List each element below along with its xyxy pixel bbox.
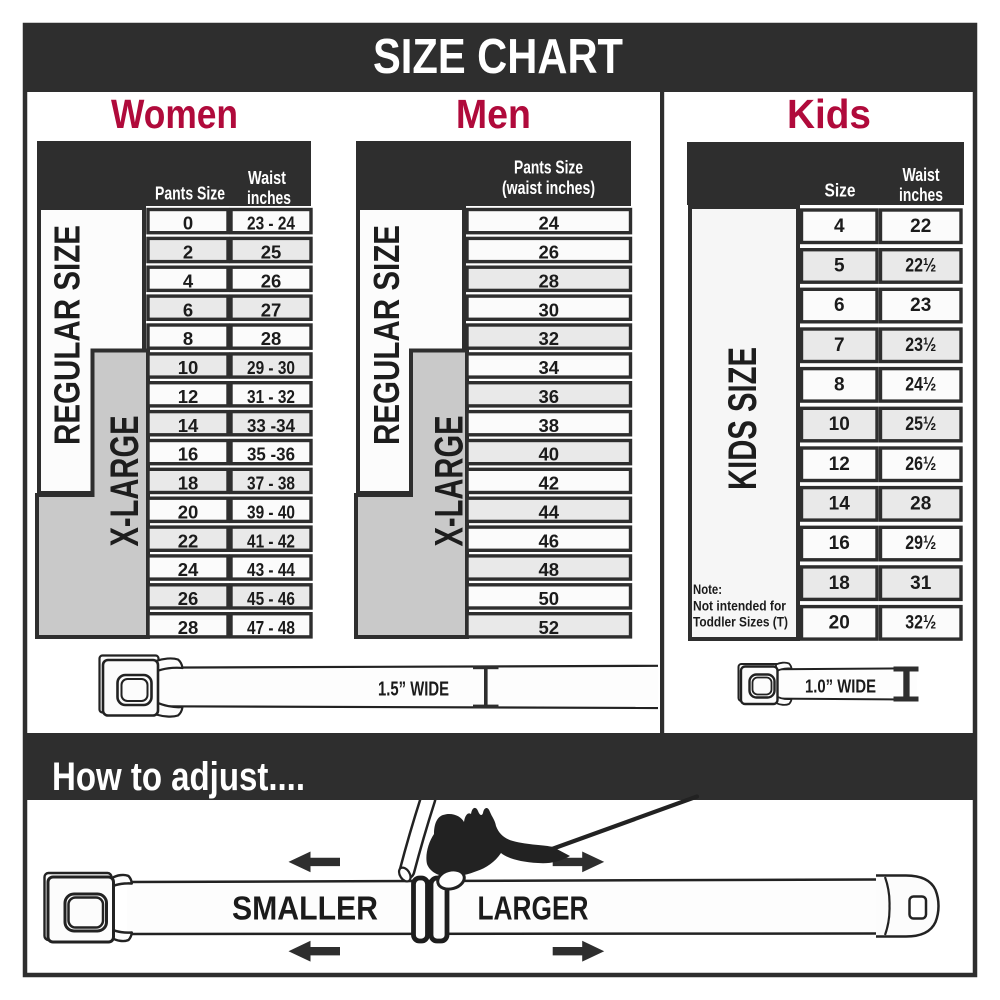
- svg-text:1.5” WIDE: 1.5” WIDE: [378, 679, 449, 701]
- svg-text:8: 8: [183, 328, 193, 349]
- svg-text:Toddler Sizes (T): Toddler Sizes (T): [693, 615, 788, 630]
- svg-text:40: 40: [538, 444, 559, 465]
- svg-text:48: 48: [538, 559, 559, 580]
- svg-text:X-LARGE: X-LARGE: [103, 416, 147, 547]
- svg-text:26½: 26½: [905, 454, 936, 475]
- svg-text:22: 22: [910, 216, 931, 237]
- svg-text:Waist: Waist: [248, 167, 286, 188]
- svg-text:28: 28: [910, 494, 931, 515]
- svg-text:Size: Size: [825, 180, 856, 201]
- svg-text:inches: inches: [899, 184, 943, 205]
- svg-text:38: 38: [538, 415, 559, 436]
- svg-text:24: 24: [178, 559, 199, 580]
- svg-text:42: 42: [538, 473, 559, 494]
- svg-text:30: 30: [538, 299, 559, 320]
- svg-text:20: 20: [829, 613, 850, 634]
- svg-text:34: 34: [538, 357, 559, 378]
- svg-text:KIDS SIZE: KIDS SIZE: [721, 347, 765, 490]
- svg-text:25½: 25½: [905, 414, 936, 435]
- svg-text:inches: inches: [247, 187, 291, 208]
- svg-text:29½: 29½: [905, 533, 936, 554]
- svg-text:Waist: Waist: [903, 164, 940, 185]
- svg-text:16: 16: [178, 444, 199, 465]
- svg-text:23½: 23½: [905, 335, 936, 356]
- svg-text:35 -36: 35 -36: [247, 444, 295, 465]
- svg-text:23 - 24: 23 - 24: [247, 213, 296, 234]
- svg-text:14: 14: [178, 415, 199, 436]
- svg-text:47 - 48: 47 - 48: [247, 617, 295, 638]
- svg-text:7: 7: [834, 335, 845, 356]
- svg-text:0: 0: [183, 213, 193, 234]
- svg-text:23: 23: [910, 295, 931, 316]
- svg-text:REGULAR SIZE: REGULAR SIZE: [47, 225, 88, 445]
- svg-text:10: 10: [829, 414, 850, 435]
- svg-text:6: 6: [183, 299, 193, 320]
- svg-text:1.0” WIDE: 1.0” WIDE: [805, 677, 876, 697]
- svg-text:24: 24: [538, 213, 559, 234]
- svg-text:31: 31: [910, 573, 932, 594]
- svg-text:10: 10: [178, 357, 199, 378]
- svg-text:46: 46: [538, 530, 559, 551]
- svg-text:14: 14: [829, 494, 851, 515]
- svg-text:Note:: Note:: [693, 582, 722, 597]
- svg-text:SIZE CHART: SIZE CHART: [373, 29, 623, 84]
- svg-text:50: 50: [538, 588, 559, 609]
- svg-text:12: 12: [178, 386, 199, 407]
- svg-text:5: 5: [834, 256, 845, 277]
- svg-text:4: 4: [834, 216, 845, 237]
- svg-text:33 -34: 33 -34: [247, 415, 296, 436]
- svg-text:6: 6: [834, 295, 845, 316]
- svg-text:28: 28: [538, 270, 559, 291]
- svg-text:22½: 22½: [905, 256, 936, 277]
- svg-text:Not intended for: Not intended for: [693, 599, 787, 614]
- svg-text:8: 8: [834, 375, 845, 396]
- svg-text:43 - 44: 43 - 44: [247, 559, 296, 580]
- svg-text:18: 18: [829, 573, 850, 594]
- svg-text:(waist inches): (waist inches): [502, 177, 595, 198]
- svg-text:52: 52: [538, 617, 559, 638]
- svg-text:44: 44: [538, 501, 559, 522]
- svg-text:26: 26: [538, 242, 559, 263]
- svg-text:24½: 24½: [905, 375, 936, 396]
- svg-text:37 - 38: 37 - 38: [247, 473, 295, 494]
- svg-text:REGULAR SIZE: REGULAR SIZE: [366, 225, 407, 445]
- svg-text:4: 4: [183, 270, 194, 291]
- svg-text:SMALLER: SMALLER: [232, 890, 378, 927]
- svg-text:18: 18: [178, 473, 199, 494]
- svg-text:Men: Men: [456, 91, 531, 137]
- svg-text:22: 22: [178, 530, 199, 551]
- svg-text:2: 2: [183, 242, 193, 263]
- svg-text:27: 27: [261, 299, 282, 320]
- svg-text:16: 16: [829, 533, 850, 554]
- svg-text:25: 25: [261, 242, 282, 263]
- svg-text:Pants Size: Pants Size: [514, 157, 583, 178]
- svg-text:Pants Size: Pants Size: [155, 183, 225, 204]
- svg-text:26: 26: [261, 270, 282, 291]
- svg-text:Women: Women: [111, 91, 238, 137]
- svg-text:20: 20: [178, 501, 199, 522]
- svg-text:X-LARGE: X-LARGE: [427, 416, 471, 547]
- svg-text:28: 28: [178, 617, 199, 638]
- svg-text:29 - 30: 29 - 30: [247, 357, 295, 378]
- svg-text:LARGER: LARGER: [478, 890, 589, 927]
- svg-text:36: 36: [538, 386, 559, 407]
- svg-text:45 - 46: 45 - 46: [247, 588, 295, 609]
- svg-text:32: 32: [538, 328, 559, 349]
- svg-text:32½: 32½: [905, 613, 936, 634]
- svg-text:28: 28: [261, 328, 282, 349]
- svg-text:How to adjust....: How to adjust....: [52, 755, 305, 799]
- svg-text:39 - 40: 39 - 40: [247, 501, 295, 522]
- svg-text:12: 12: [829, 454, 850, 475]
- svg-text:31 - 32: 31 - 32: [247, 386, 295, 407]
- svg-text:26: 26: [178, 588, 199, 609]
- svg-text:Kids: Kids: [787, 91, 871, 137]
- svg-text:41 - 42: 41 - 42: [247, 530, 295, 551]
